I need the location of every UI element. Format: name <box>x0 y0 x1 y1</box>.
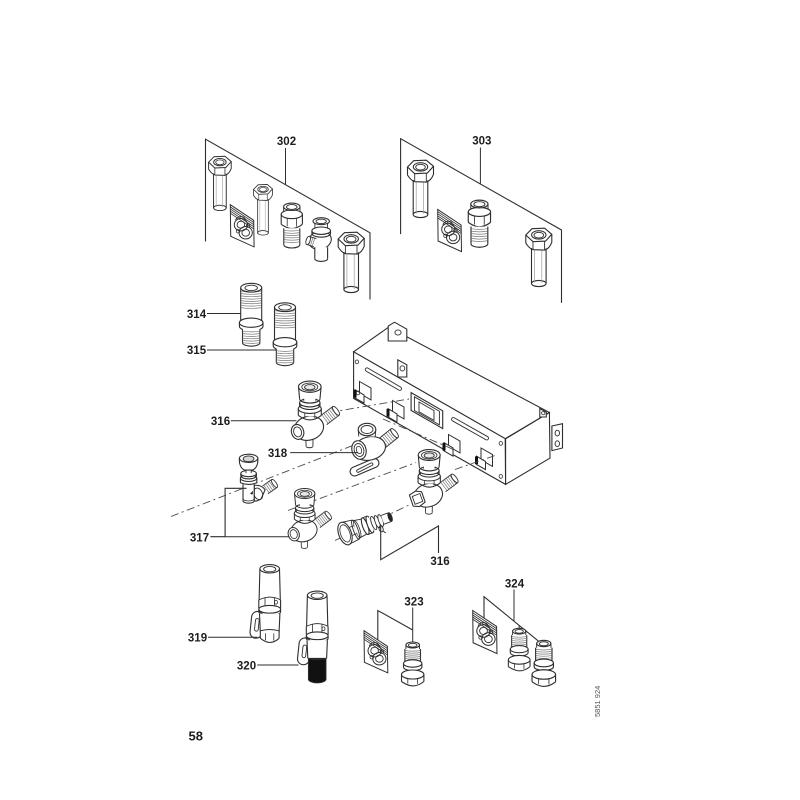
svg-text:318: 318 <box>268 448 288 460</box>
svg-text:324: 324 <box>505 579 525 591</box>
svg-text:303: 303 <box>472 136 491 148</box>
svg-text:315: 315 <box>187 345 207 357</box>
svg-text:323: 323 <box>404 597 423 609</box>
svg-text:320: 320 <box>237 661 256 673</box>
svg-text:319: 319 <box>188 633 207 645</box>
svg-text:58: 58 <box>189 729 203 744</box>
svg-text:314: 314 <box>187 309 207 321</box>
svg-text:302: 302 <box>277 136 296 148</box>
svg-text:316: 316 <box>430 556 449 568</box>
svg-text:5851 924: 5851 924 <box>593 686 602 717</box>
svg-text:316: 316 <box>211 416 230 428</box>
svg-text:317: 317 <box>190 533 209 545</box>
